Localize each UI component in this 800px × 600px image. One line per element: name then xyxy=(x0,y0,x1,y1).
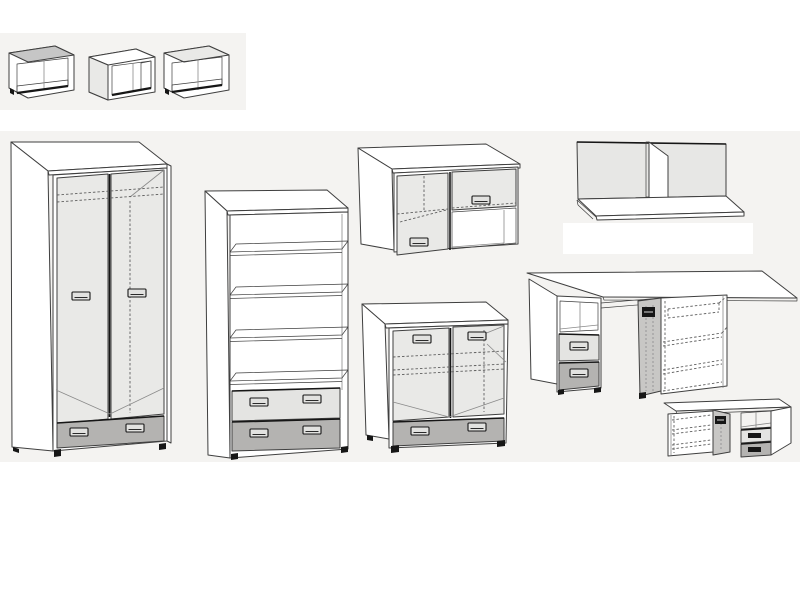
bookcase xyxy=(205,190,348,460)
bookcase-drawer-top-handle-right xyxy=(303,395,321,403)
bookcase-left-side xyxy=(205,191,230,458)
chest-right-door-handle xyxy=(468,332,486,340)
wardrobe-left-side xyxy=(11,142,53,451)
chest-left-door-handle xyxy=(413,335,431,343)
desk-large-pedestal-side xyxy=(529,279,557,384)
wall-cube-3 xyxy=(164,46,229,98)
wardrobe-drawer-handle-left xyxy=(70,428,88,436)
wardrobe xyxy=(11,142,171,457)
wall-cube-1 xyxy=(9,46,74,98)
bookcase-top xyxy=(205,190,348,211)
furniture-drawings xyxy=(0,0,800,600)
desk-large-cabinet-door-handle xyxy=(642,307,655,317)
wardrobe-left-door-handle xyxy=(72,292,90,300)
desk-small-drawer-bottom-handle xyxy=(748,447,761,452)
desk-large-cabinet xyxy=(661,295,727,394)
wall-shelf-label-area xyxy=(563,223,753,254)
chest xyxy=(362,302,508,453)
wardrobe-right-door-handle xyxy=(128,289,146,297)
desk-small-cabinet-door-handle xyxy=(715,416,726,424)
bookcase-drawer-bottom xyxy=(232,419,340,451)
desk-large-drawer-top-handle xyxy=(570,342,588,350)
bookcase-drawer-top-handle-left xyxy=(250,398,268,406)
chest-drawer-handle-left xyxy=(411,427,429,435)
chest-drawer-handle-right xyxy=(468,423,486,431)
wall-shelf xyxy=(563,142,753,254)
wall-cabinet-right-door-handle xyxy=(472,196,490,204)
wardrobe-drawer-handle-right xyxy=(126,424,144,432)
wall-cabinet xyxy=(358,144,520,255)
wardrobe-right-edge xyxy=(167,164,171,443)
catalog-sheet xyxy=(0,0,800,600)
wall-cube-2 xyxy=(89,49,155,100)
cube2-left-side xyxy=(89,57,108,100)
bookcase-drawer-bottom-handle-left xyxy=(250,429,268,437)
desk-large-drawer-bottom-handle xyxy=(570,369,588,377)
desk-small-drawer-top-handle xyxy=(748,433,761,438)
bookcase-drawer-top xyxy=(232,388,340,421)
bookcase-drawer-bottom-handle-right xyxy=(303,426,321,434)
chest-left-side xyxy=(362,304,389,439)
wall-cabinet-left-door-handle xyxy=(410,238,428,246)
desk-small xyxy=(664,399,791,457)
